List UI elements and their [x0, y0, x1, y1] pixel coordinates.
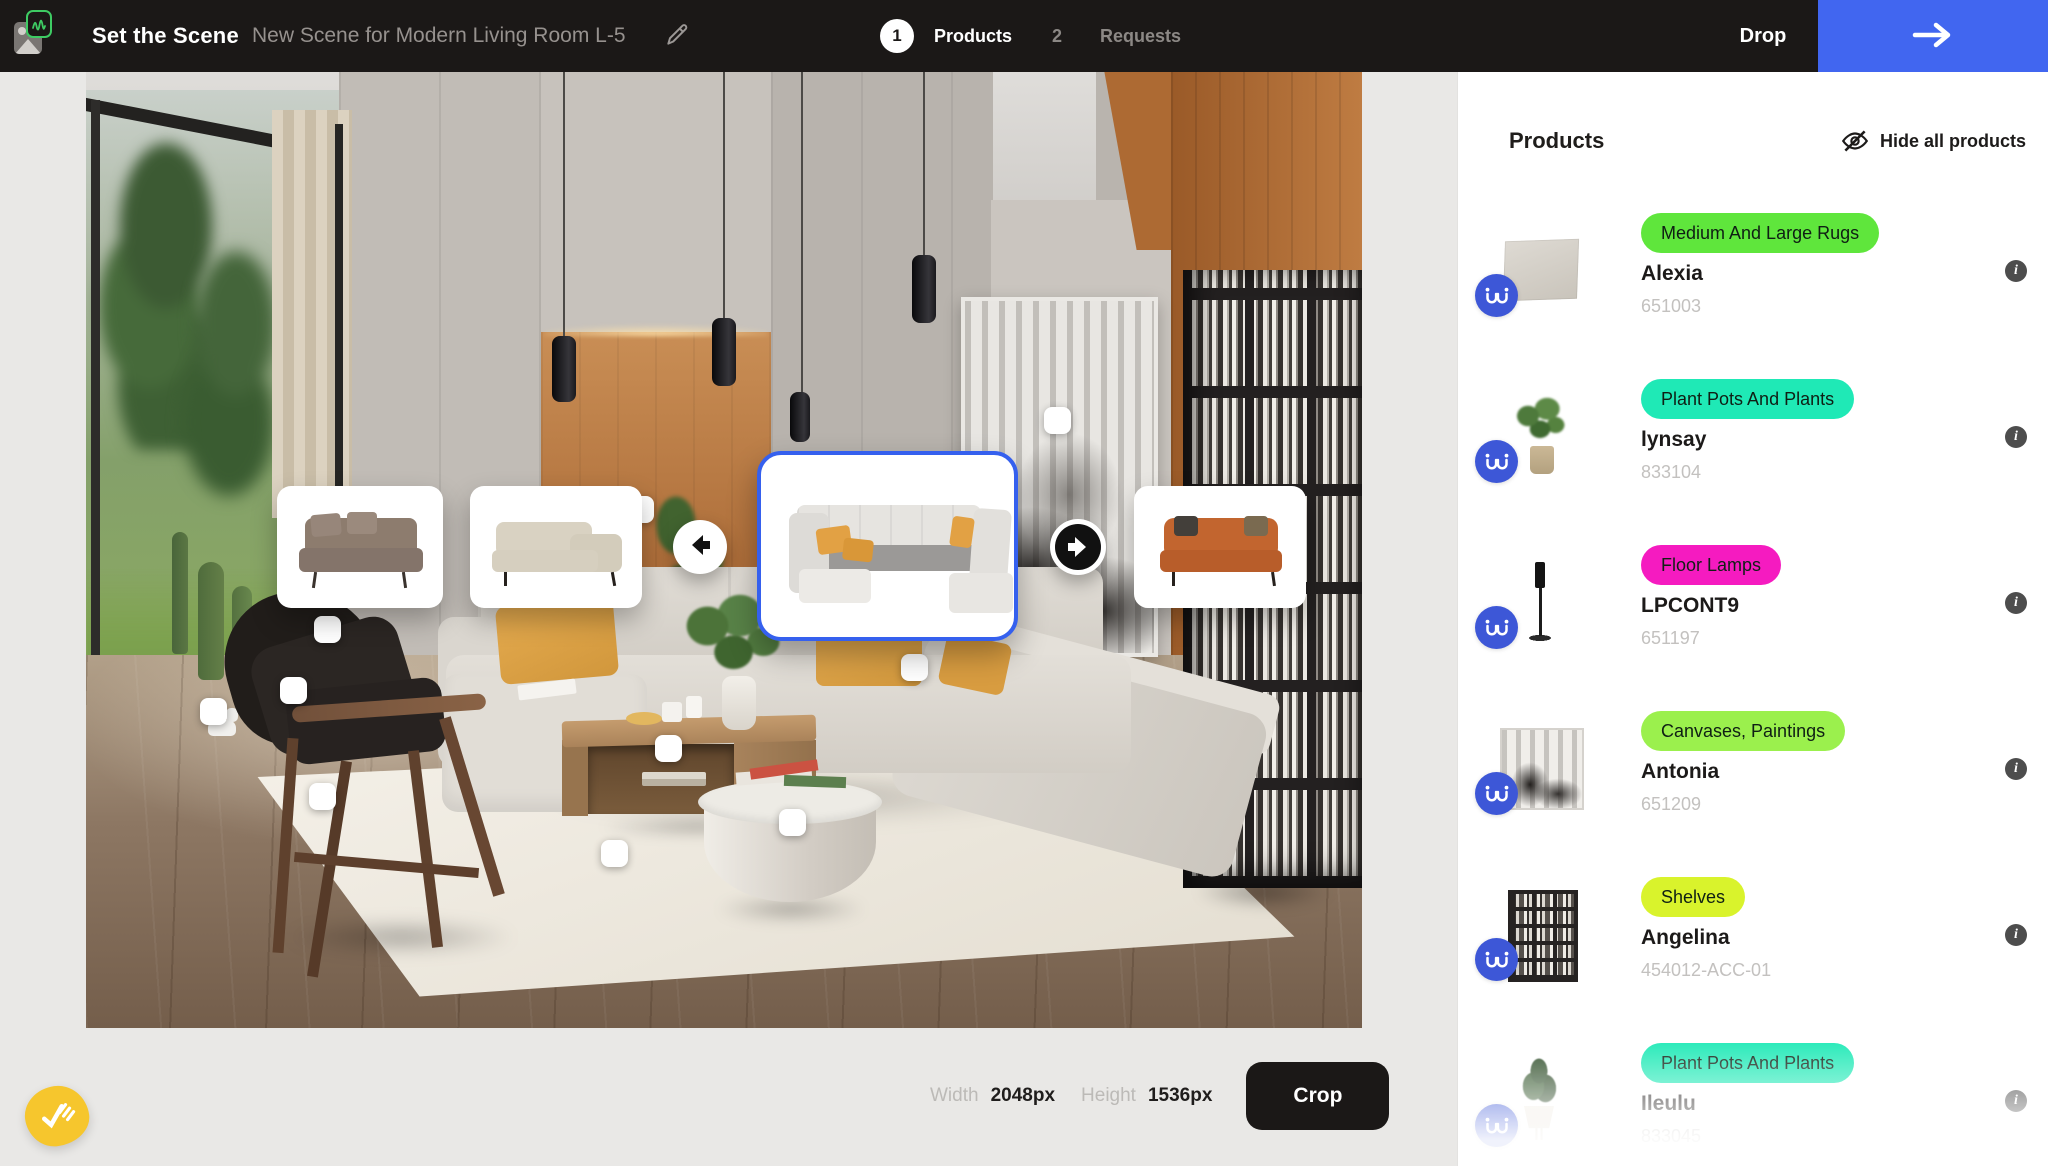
carousel-card-beige-sectional[interactable]: [470, 486, 642, 608]
scene-canvas[interactable]: [86, 72, 1362, 1028]
orange-pillow: [949, 516, 975, 549]
product-thumbnail: [1490, 558, 1590, 658]
double-check-icon: [35, 1097, 79, 1134]
brand-logo-icon: [1475, 1104, 1518, 1147]
product-thumbnail: [1490, 890, 1590, 990]
product-sku: 651209: [1641, 794, 1701, 815]
pendant-cord: [923, 72, 925, 257]
sofa-leg: [504, 572, 507, 586]
product-sku: 833045: [1641, 1126, 1701, 1147]
set-the-scene-app: Set the Scene New Scene for Modern Livin…: [0, 0, 2048, 1166]
height-label: Height: [1081, 1085, 1136, 1107]
crop-toolbar: Width 2048px Height 1536px Crop: [930, 1062, 1389, 1130]
step-1-indicator[interactable]: 1: [880, 19, 914, 53]
category-badge: Shelves: [1641, 877, 1745, 917]
info-icon[interactable]: i: [2005, 758, 2027, 780]
orange-pillow: [842, 537, 874, 562]
cup: [662, 702, 682, 722]
product-name: Alexia: [1641, 262, 1703, 286]
drop-button[interactable]: Drop: [1718, 0, 1808, 72]
crop-button[interactable]: Crop: [1246, 1062, 1389, 1130]
product-marker[interactable]: [779, 809, 806, 836]
panel-title: Products: [1509, 128, 1604, 154]
sofa-leg: [312, 572, 317, 588]
product-marker[interactable]: [309, 783, 336, 810]
product-marker[interactable]: [314, 616, 341, 643]
brand-logo-icon: [1475, 606, 1518, 649]
category-badge: Floor Lamps: [1641, 545, 1781, 585]
product-marker[interactable]: [1044, 407, 1071, 434]
brand-logo-icon: [1475, 274, 1518, 317]
brand-logo-icon: [1475, 440, 1518, 483]
sofa-leg: [402, 572, 407, 588]
carousel-card-selected-u-sectional[interactable]: [757, 451, 1018, 641]
mustard-pillow: [495, 597, 619, 685]
product-sku: 651003: [1641, 296, 1701, 317]
product-sku: 651197: [1641, 628, 1700, 649]
brown-sofa-pillow: [310, 513, 342, 538]
product-name: lynsay: [1641, 428, 1706, 452]
orange-sofa-seat: [1160, 550, 1282, 572]
orange-sofa-pillow: [1244, 516, 1268, 536]
carousel-prev-button[interactable]: [673, 520, 727, 574]
product-marker[interactable]: [280, 677, 307, 704]
product-marker[interactable]: [901, 654, 928, 681]
carousel-next-button[interactable]: [1050, 519, 1106, 575]
arrow-right-icon: [1910, 21, 1956, 52]
beige-sofa-seat: [492, 550, 598, 572]
pendant-cord: [563, 72, 565, 338]
eye-off-icon: [1840, 128, 1870, 154]
tab-products[interactable]: Products: [934, 0, 1012, 72]
coffee-table-leg: [562, 740, 588, 816]
step-2-indicator[interactable]: 2: [1052, 0, 1062, 72]
sofa-leg: [611, 572, 616, 586]
app-logo[interactable]: [14, 10, 62, 62]
product-name: Antonia: [1641, 760, 1719, 784]
product-thumbnail: [1490, 226, 1590, 326]
info-icon[interactable]: i: [2005, 260, 2027, 282]
height-value: 1536px: [1148, 1085, 1212, 1107]
sofa-leg: [1271, 572, 1276, 586]
product-name: Ileulu: [1641, 1092, 1696, 1116]
bowl: [626, 712, 662, 725]
carousel-card-orange-sofa[interactable]: [1134, 486, 1306, 608]
next-step-button[interactable]: [1818, 0, 2048, 72]
cactus: [198, 562, 224, 680]
info-icon[interactable]: i: [2005, 1090, 2027, 1112]
brown-sofa-seat: [299, 548, 423, 572]
product-marker[interactable]: [601, 840, 628, 867]
orange-sofa-pillow: [1174, 516, 1198, 536]
info-icon[interactable]: i: [2005, 592, 2027, 614]
product-row[interactable]: Medium And Large Rugs Alexia 651003 i: [1458, 200, 2048, 350]
coffee-table-books: [642, 772, 706, 786]
product-row[interactable]: Canvases, Paintings Antonia 651209 i: [1458, 698, 2048, 848]
scribble-icon: [26, 10, 52, 38]
cup: [686, 696, 702, 718]
width-label: Width: [930, 1085, 979, 1107]
white-sectional-ottoman: [799, 569, 871, 603]
app-title: Set the Scene: [92, 0, 239, 72]
category-badge: Plant Pots And Plants: [1641, 1043, 1854, 1083]
feedback-widget-button[interactable]: [21, 1082, 93, 1150]
brown-sofa-pillow: [383, 514, 411, 536]
product-thumbnail: [1490, 724, 1590, 824]
product-name: LPCONT9: [1641, 594, 1739, 618]
pendant-lamp: [552, 336, 576, 402]
hide-all-products-label: Hide all products: [1880, 131, 2026, 152]
pendant-lamp: [712, 318, 736, 386]
info-icon[interactable]: i: [2005, 426, 2027, 448]
product-row[interactable]: Plant Pots And Plants Ileulu 833045 i: [1458, 1030, 2048, 1166]
white-sectional-ottoman: [949, 573, 1013, 613]
tab-requests[interactable]: Requests: [1100, 0, 1181, 72]
category-badge: Canvases, Paintings: [1641, 711, 1845, 751]
sofa-leg: [1172, 572, 1175, 586]
wall-panel-upper-center: [541, 72, 771, 340]
magazine: [784, 775, 846, 788]
product-sku: 454012-ACC-01: [1641, 960, 1771, 981]
category-badge: Plant Pots And Plants: [1641, 379, 1854, 419]
product-thumbnail: [1490, 392, 1590, 492]
pendant-lamp: [790, 392, 810, 442]
brown-sofa-pillow: [347, 512, 377, 534]
carousel-card-brown-sofa[interactable]: [277, 486, 443, 608]
cactus: [172, 532, 188, 654]
arrow-left-icon: [687, 532, 713, 563]
product-thumbnail: [1490, 1056, 1590, 1156]
brand-logo-icon: [1475, 772, 1518, 815]
product-row[interactable]: Plant Pots And Plants lynsay 833104 i: [1458, 366, 2048, 516]
brand-logo-icon: [1475, 938, 1518, 981]
info-icon[interactable]: i: [2005, 924, 2027, 946]
pendant-cord: [801, 72, 803, 394]
product-name: Angelina: [1641, 926, 1730, 950]
product-row[interactable]: Shelves Angelina 454012-ACC-01 i: [1458, 864, 2048, 1014]
category-badge: Medium And Large Rugs: [1641, 213, 1879, 253]
edit-pencil-icon[interactable]: [664, 22, 692, 50]
product-marker[interactable]: [655, 735, 682, 762]
hide-all-products-button[interactable]: Hide all products: [1840, 128, 2026, 154]
product-sku: 833104: [1641, 462, 1701, 483]
product-row[interactable]: Floor Lamps LPCONT9 651197 i: [1458, 532, 2048, 682]
product-marker[interactable]: [200, 698, 227, 725]
width-value: 2048px: [991, 1085, 1055, 1107]
scene-name[interactable]: New Scene for Modern Living Room L-5: [252, 0, 626, 72]
top-bar: Set the Scene New Scene for Modern Livin…: [0, 0, 2048, 72]
arrow-right-icon: [1055, 524, 1101, 570]
pendant-cord: [723, 72, 725, 320]
products-panel: Products Hide all products Medium And La…: [1457, 72, 2048, 1166]
pendant-lamp: [912, 255, 936, 323]
